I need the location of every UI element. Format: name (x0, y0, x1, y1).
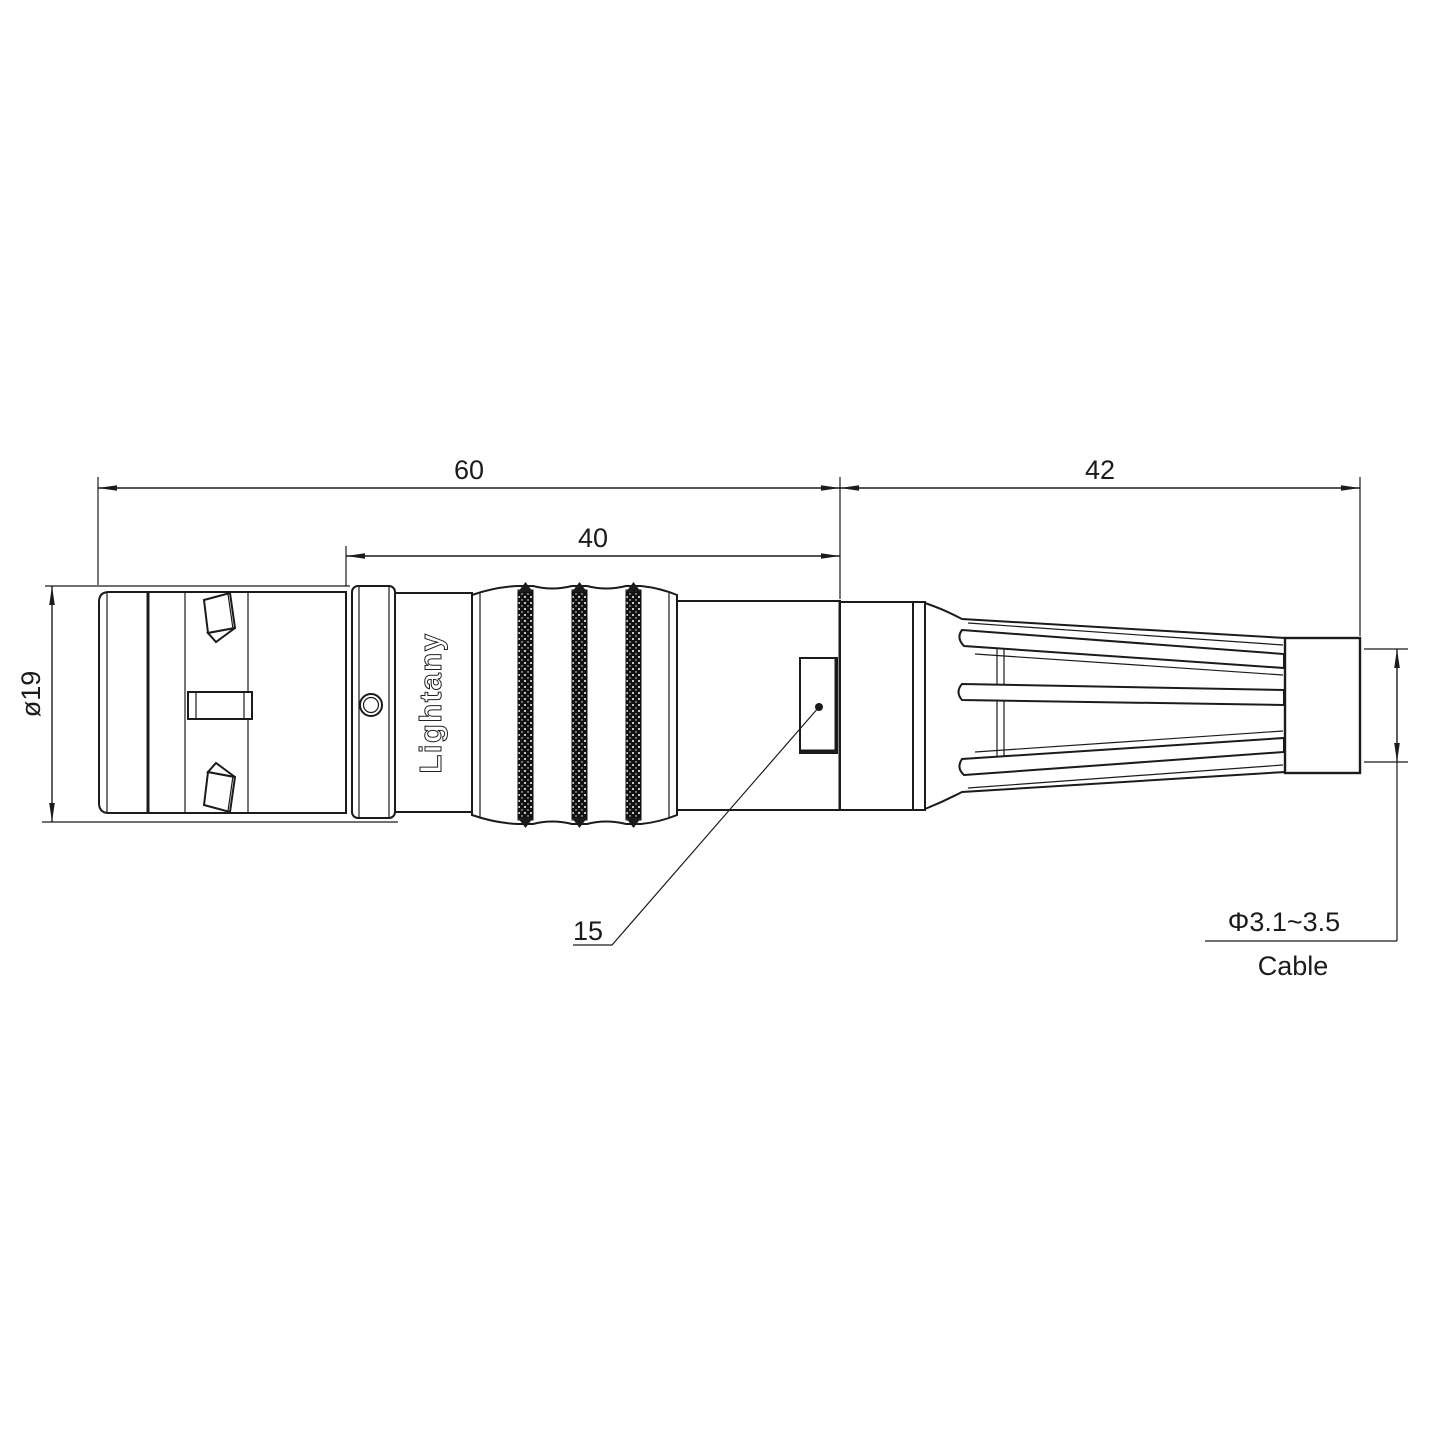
cable-bushing (1285, 638, 1360, 773)
dim-front-length: 60 (98, 455, 840, 488)
front-coupling-section (99, 592, 346, 813)
locating-ring (352, 586, 395, 818)
knurl-band-1 (518, 582, 533, 828)
strain-relief (840, 602, 1285, 810)
dim-40-label: 40 (578, 523, 608, 553)
dim-60-label: 60 (454, 455, 484, 485)
dim-front-diameter: ø19 (16, 586, 52, 822)
knurl-band-2 (572, 582, 587, 828)
knurl-band-3 (626, 582, 641, 828)
detail-15-label: 15 (573, 916, 603, 946)
knurled-section (472, 582, 677, 828)
body-brand-label: Lightany (413, 632, 448, 773)
cable-label: Cable (1258, 951, 1329, 981)
dim-42-label: 42 (1085, 455, 1115, 485)
technical-drawing: Lightany (0, 0, 1440, 1440)
brand-section: Lightany (395, 593, 472, 812)
dim-mid-length: 40 (346, 523, 840, 556)
dim-rear-length: 42 (840, 455, 1360, 488)
connector-body: Lightany (99, 582, 1360, 828)
dia-19-label: ø19 (16, 671, 46, 718)
cable-range-label: Φ3.1~3.5 (1228, 907, 1340, 937)
drawing-canvas: Lightany (0, 0, 1440, 1440)
center-slot (188, 692, 252, 719)
